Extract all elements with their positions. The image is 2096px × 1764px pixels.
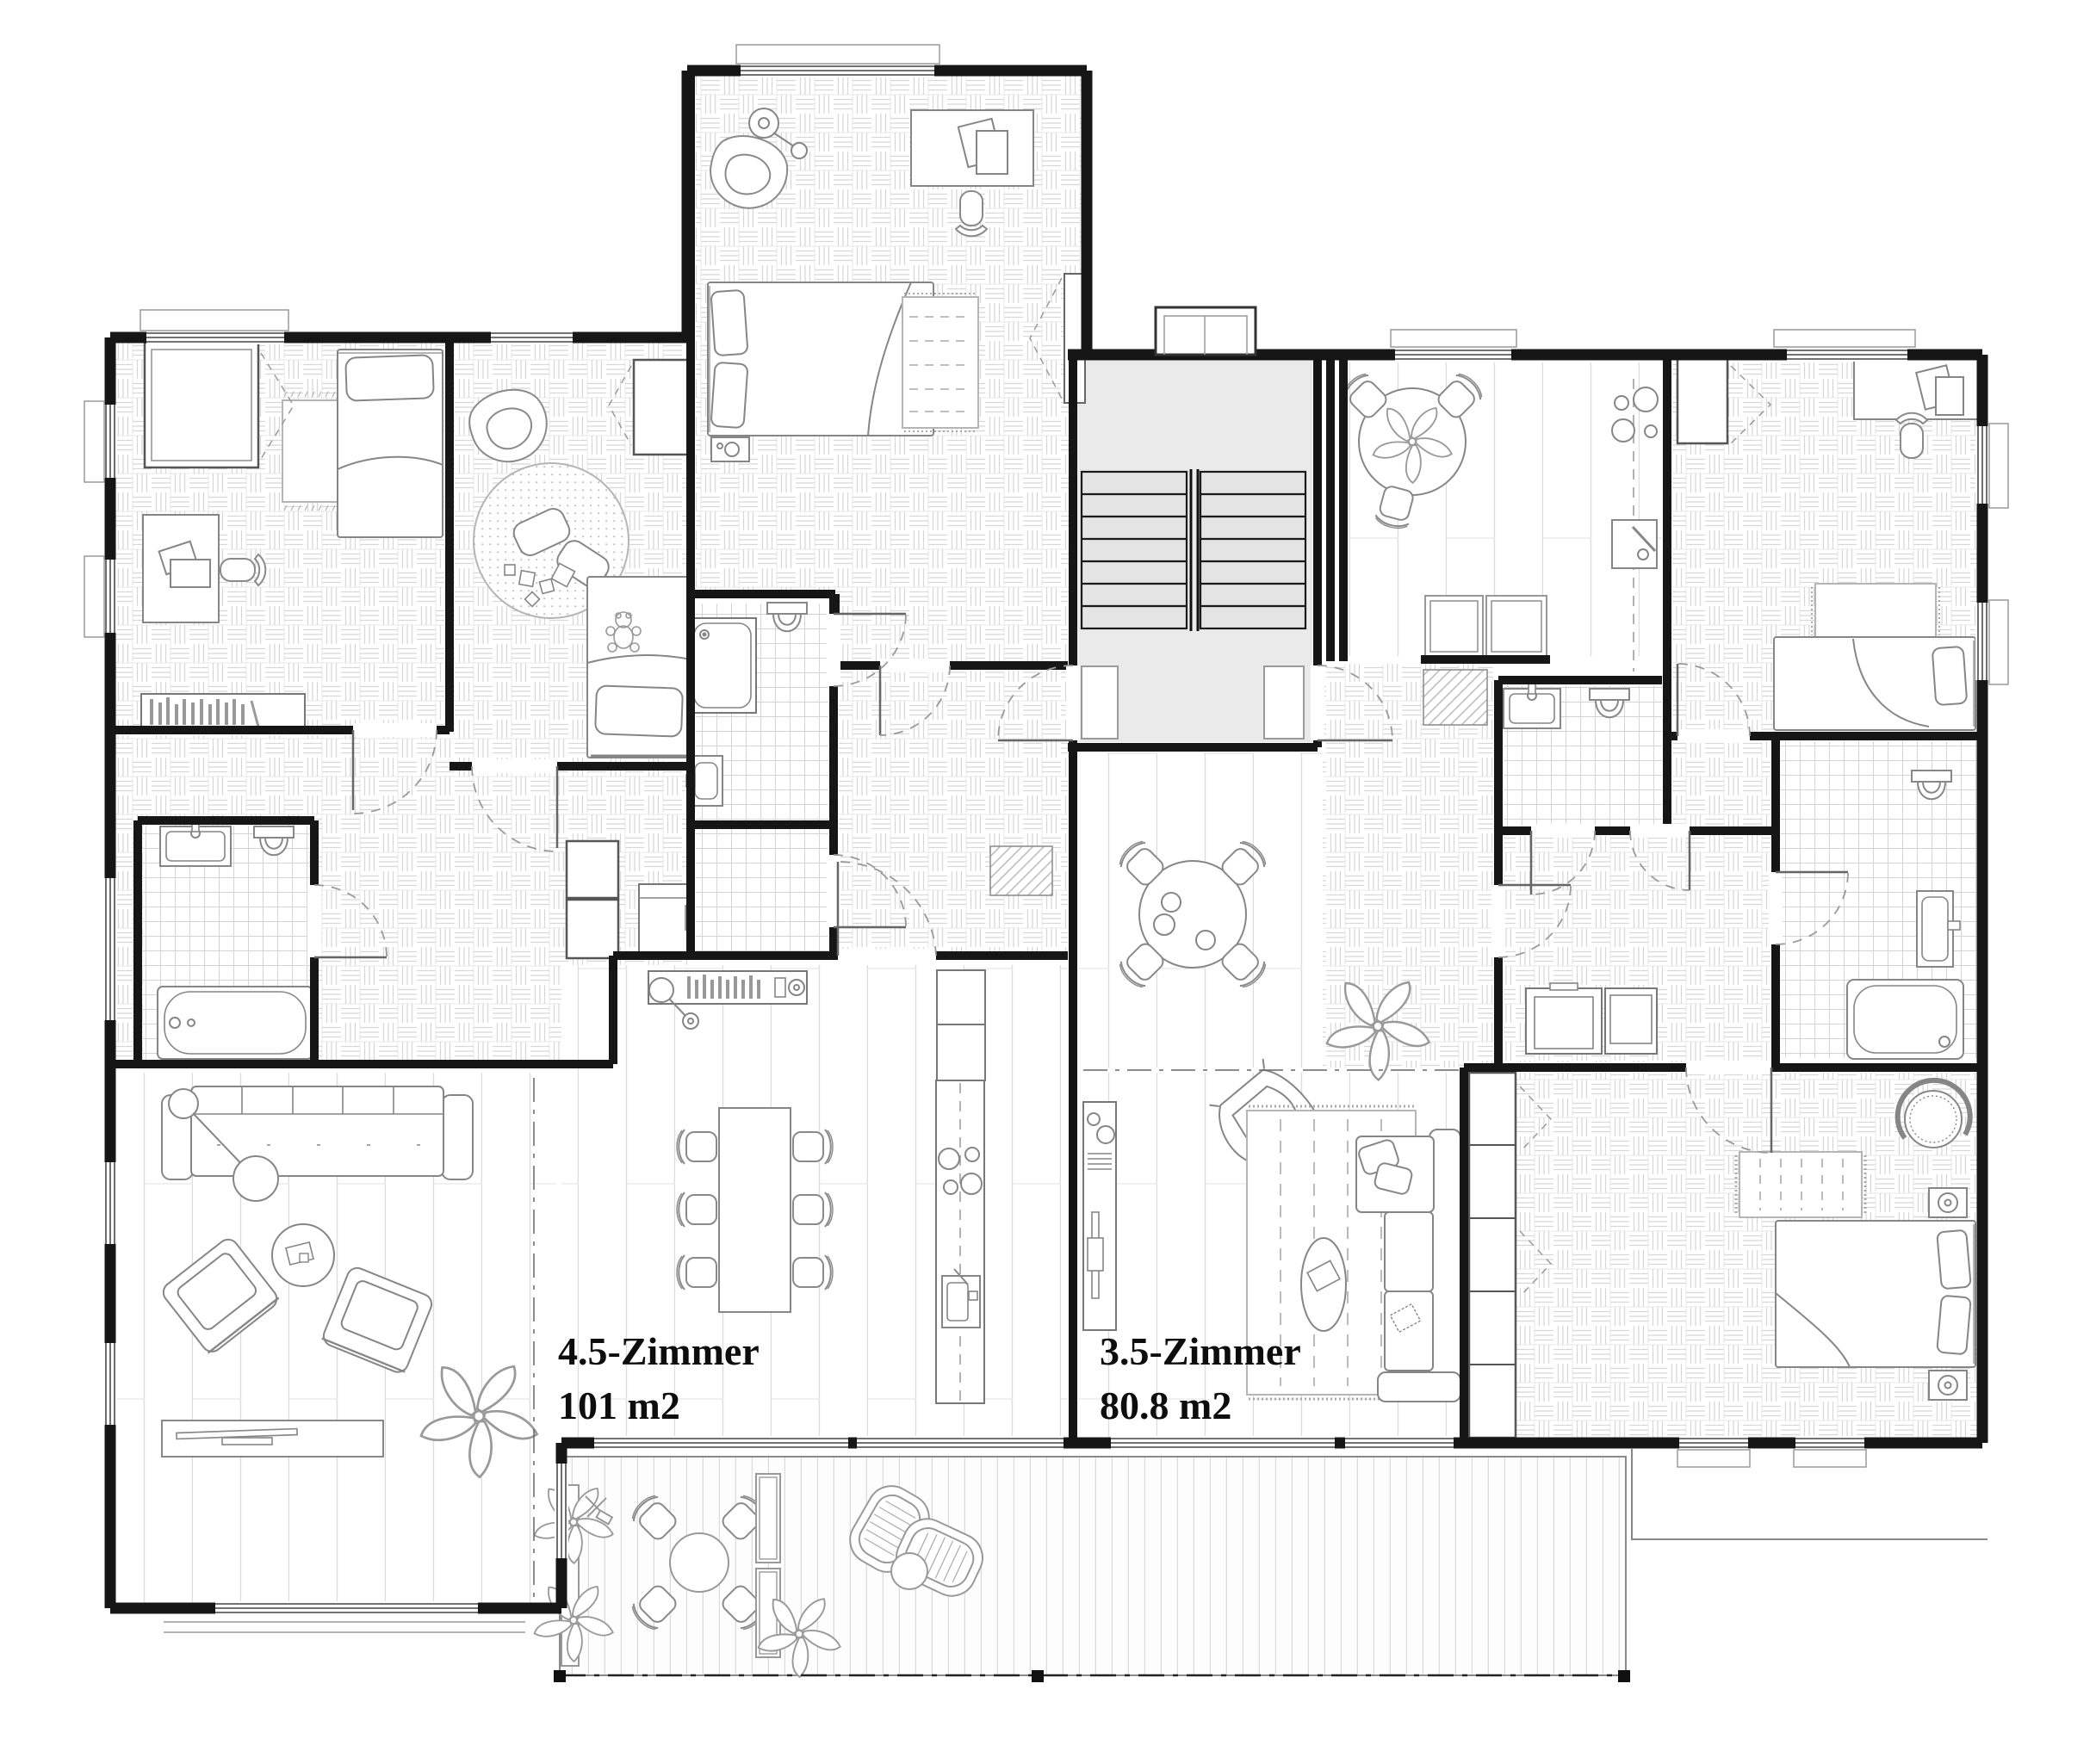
- stair-flight-left: [1082, 472, 1187, 628]
- desk-icon: [911, 110, 1033, 186]
- speaker-icon: [711, 437, 749, 461]
- apartment-left-area: 101 m2: [558, 1383, 680, 1427]
- entrance-vestibule: [1156, 307, 1256, 355]
- wardrobe-icon: [1677, 355, 1727, 443]
- pillow-icon: [345, 355, 434, 400]
- kitchen-left: [936, 970, 985, 1403]
- floorplan-drawing: 4.5-Zimmer 101 m2 3.5-Zimmer 80.8 m2: [0, 0, 2096, 1764]
- sink-icon: [1917, 891, 1960, 967]
- chair-icon: [956, 191, 987, 236]
- cabinet-icon: [567, 841, 618, 898]
- room-storage-left: [639, 884, 694, 955]
- single-bed-icon: [338, 350, 443, 537]
- dining-table-icon: [719, 1108, 791, 1312]
- desk-icon: [1854, 358, 1978, 419]
- rug-icon: [1736, 1152, 1865, 1217]
- round-table-icon: [670, 1533, 729, 1592]
- cabinet-icon: [567, 900, 618, 958]
- terrace-post: [554, 1670, 566, 1682]
- nightstand-icon: [1929, 1188, 1967, 1217]
- room-corridor-right: [1526, 983, 1657, 1054]
- shower-icon: [689, 618, 756, 713]
- pillow-icon: [710, 362, 747, 428]
- coat-rack-icon: [1423, 670, 1487, 725]
- coffee-table-icon: [272, 1224, 334, 1286]
- pillow-icon: [1937, 1296, 1971, 1355]
- single-bed-icon: [587, 577, 691, 758]
- terrace-post: [1032, 1670, 1044, 1682]
- rug-icon: [902, 294, 978, 431]
- sofa-icon: [162, 1086, 473, 1179]
- apartment-right-area: 80.8 m2: [1100, 1383, 1231, 1427]
- pillow-icon: [1932, 647, 1968, 705]
- apartment-left-label: 4.5-Zimmer: [558, 1329, 760, 1373]
- nightstand-icon: [1929, 1371, 1967, 1400]
- rug-icon: [1812, 584, 1939, 639]
- apartment-right-label: 3.5-Zimmer: [1100, 1329, 1301, 1373]
- pillow-icon: [595, 685, 683, 736]
- doormat-left: [1082, 666, 1118, 739]
- wardrobe-icon: [1469, 1073, 1516, 1438]
- doormat-right: [1264, 666, 1304, 739]
- kitchen-sink-icon: [942, 1269, 980, 1328]
- chair-icon: [1896, 413, 1927, 458]
- desk-icon: [143, 515, 219, 622]
- terrace-post: [1618, 1670, 1630, 1682]
- sink-icon: [1504, 682, 1560, 728]
- bathtub-icon: [158, 987, 313, 1059]
- kitchen-cabinet-icon: [937, 970, 985, 1024]
- tv-board-icon: [162, 1420, 383, 1457]
- wardrobe-icon: [634, 360, 689, 455]
- kitchen-sink-icon: [1612, 520, 1657, 568]
- kitchen-counter-icon: [1083, 1102, 1116, 1330]
- bookshelf-icon: [141, 694, 305, 730]
- coffee-table-icon: [1301, 1238, 1346, 1331]
- stair-flight-right: [1200, 472, 1305, 628]
- floor-entry-left: [839, 671, 1068, 955]
- pillow-icon: [1937, 1230, 1971, 1290]
- bathtub-icon: [1847, 980, 1963, 1059]
- coat-rack-icon: [990, 846, 1052, 895]
- kitchen-cabinet-icon: [937, 1024, 985, 1080]
- rug-icon: [282, 400, 343, 502]
- double-bed-icon: [1776, 1221, 1975, 1367]
- floorplan-canvas: 4.5-Zimmer 101 m2 3.5-Zimmer 80.8 m2: [0, 0, 2096, 1764]
- side-table-icon: [891, 1553, 927, 1589]
- pillow-icon: [710, 290, 747, 356]
- double-bed-icon: [708, 282, 933, 436]
- sink-icon: [160, 820, 231, 866]
- single-bed-icon: [1774, 637, 1975, 730]
- washing-machine-icon: [639, 884, 692, 955]
- chair-icon: [220, 554, 265, 585]
